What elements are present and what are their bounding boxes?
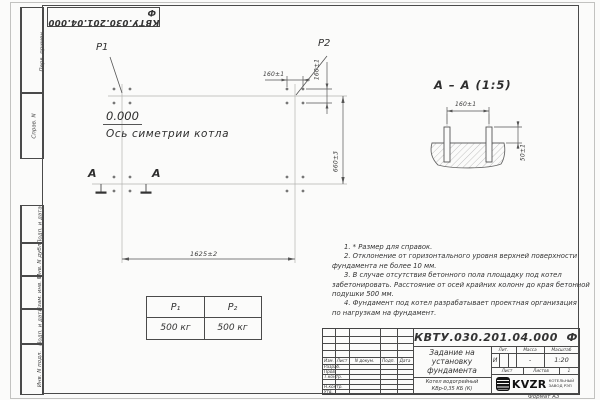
format-label: Формат А3 [528, 394, 559, 400]
note-line: 2. Отклонение от горизонтального уровня … [332, 252, 584, 261]
mass-value: - [516, 353, 544, 367]
note-line: фундамента не более 10 мм. [332, 262, 584, 271]
sheet-label: Лист [491, 367, 523, 374]
dim-label-width: 660±3 [333, 149, 340, 175]
titleblock-designation: КВТУ.030.201.04.000 Ф [413, 329, 579, 346]
lit-label: Лит. [491, 346, 516, 353]
elevation-mark: 0.000 [103, 109, 142, 125]
section-dim-height: 50±1 [520, 141, 527, 165]
dim-label-length: 1625±2 [190, 250, 217, 258]
load-label-p2: P2 [318, 38, 330, 49]
role-utv: Утв. [324, 389, 349, 394]
load-table: P₁ P₂ 500 кг 500 кг [146, 296, 262, 340]
anchor-bolt-right [486, 127, 492, 162]
titleblock-product-name: Котел водогрейный КВр-0,35 КБ (К) [415, 377, 489, 394]
technical-notes: 1. * Размер для справок. 2. Отклонение о… [332, 243, 584, 318]
note-line: забетонировать. Расстояние от осей крайн… [332, 281, 584, 290]
lit-value: И [491, 353, 499, 367]
role-tkontr: Т.контр. [324, 374, 349, 379]
anchor-bolt-left [444, 127, 450, 162]
section-dim-bolts: 160±1 [455, 101, 476, 108]
dim-label-bolt-y: 160±1 [314, 58, 321, 82]
anchor-bolt-dots [113, 88, 305, 193]
company-logo-icon [496, 377, 510, 391]
concrete-block [431, 143, 505, 168]
scale-label: Масштаб [544, 346, 579, 353]
load-leader-lines [110, 56, 327, 95]
note-line: 1. * Размер для справок. [332, 243, 584, 252]
titleblock-doc-title: Задание на установку фундамента [415, 346, 489, 377]
note-line: 4. Фундамент под котел разрабатывает про… [332, 299, 584, 308]
section-letter-right: А [152, 167, 161, 180]
note-line: по нагрузкам на фундамент. [332, 309, 584, 318]
title-block: КВТУ.030.201.04.000 Ф Изм. Лист N докум.… [322, 328, 580, 395]
plan-dimensions [122, 62, 345, 261]
sheets-value: 1 [559, 367, 579, 374]
company-brand-sub: КОТЕЛЬНЫЙ ЗАВОД РЭП [549, 379, 575, 388]
note-line: подушки 500 мм. [332, 290, 584, 299]
company-brand: KVZR [512, 378, 547, 391]
dim-label-bolt-x: 160±1 [263, 71, 284, 78]
load-table-value-p2: 500 кг [204, 317, 261, 339]
section-letter-left: А [88, 167, 97, 180]
section-view-geometry [431, 107, 522, 168]
sheets-label: Листов [523, 367, 559, 374]
col-dokum: N докум. [349, 357, 380, 364]
section-cut-marks [96, 184, 152, 194]
load-table-header-p1: P₁ [147, 297, 204, 317]
load-table-header-p2: P₂ [204, 297, 261, 317]
col-podp: Подп. [380, 357, 397, 364]
col-izm: Изм. [323, 357, 335, 364]
col-data: Дата [397, 357, 413, 364]
company-logo-area: KVZR КОТЕЛЬНЫЙ ЗАВОД РЭП [491, 374, 579, 394]
mass-label: Масса [516, 346, 544, 353]
section-view-title: А – А (1:5) [434, 78, 512, 92]
note-line: 3. В случае отсутствия бетонного пола пл… [332, 271, 584, 280]
scale-value: 1:20 [544, 353, 579, 367]
load-label-p1: P1 [96, 42, 108, 53]
col-list: Лист [335, 357, 349, 364]
load-table-value-p1: 500 кг [147, 317, 204, 339]
drawing-sheet: Перв. примен. Справ. N Подп. и дата Инв.… [0, 0, 600, 400]
symmetry-axis-label: Ось симетрии котла [106, 128, 229, 140]
